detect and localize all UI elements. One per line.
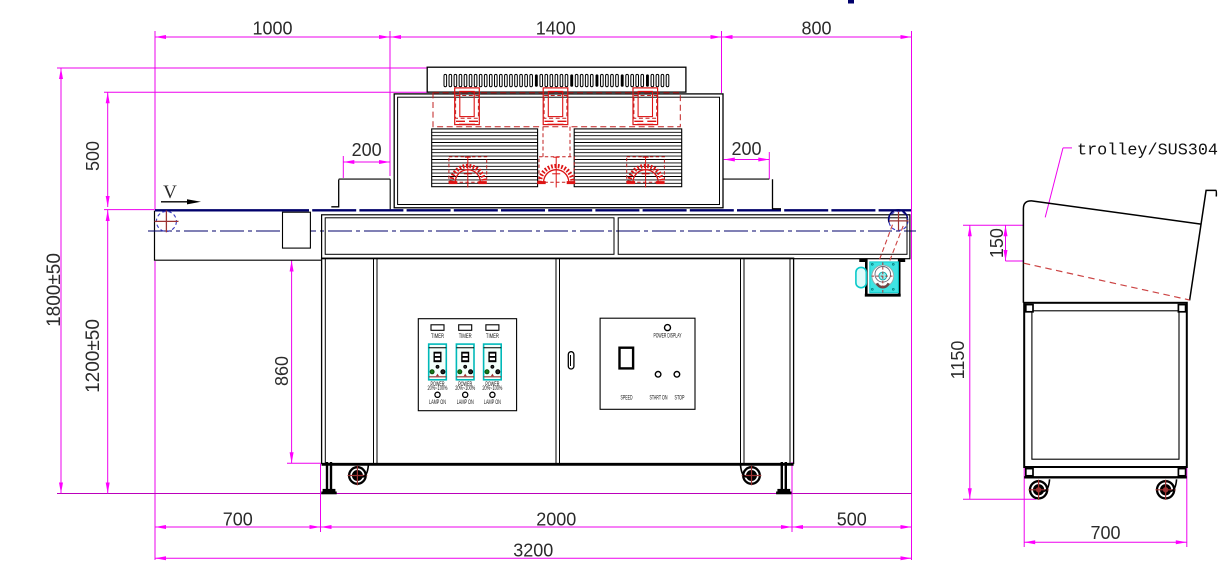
svg-text:20%~100%: 20%~100% <box>455 386 475 392</box>
svg-text:TIMER: TIMER <box>431 334 444 340</box>
svg-text:3200: 3200 <box>513 541 553 561</box>
svg-text:TIMER: TIMER <box>459 334 472 340</box>
svg-text:20%~100%: 20%~100% <box>428 386 448 392</box>
svg-text:700: 700 <box>1090 523 1120 543</box>
svg-text:200: 200 <box>352 140 382 160</box>
svg-text:500: 500 <box>837 509 867 529</box>
svg-text:LAMP ON: LAMP ON <box>457 400 474 406</box>
svg-text:TIMER: TIMER <box>486 334 499 340</box>
svg-text:LAMP ON: LAMP ON <box>484 400 501 406</box>
svg-text:POWER DISPLAY: POWER DISPLAY <box>654 333 682 339</box>
svg-text:1400: 1400 <box>536 19 576 39</box>
svg-text:V: V <box>163 182 177 203</box>
svg-text:200: 200 <box>732 139 762 159</box>
svg-text:SPEED: SPEED <box>621 396 633 402</box>
svg-text:2000: 2000 <box>536 509 576 529</box>
svg-text:860: 860 <box>272 356 292 386</box>
svg-text:START ON: START ON <box>650 396 668 402</box>
svg-text:700: 700 <box>223 509 253 529</box>
svg-text:STOP: STOP <box>675 396 685 402</box>
svg-text:1150: 1150 <box>948 341 968 380</box>
svg-text:trolley/SUS304: trolley/SUS304 <box>1077 142 1218 161</box>
svg-text:1800±50: 1800±50 <box>44 253 65 327</box>
svg-text:1000: 1000 <box>252 19 292 39</box>
svg-text:1200±50: 1200±50 <box>83 319 104 393</box>
svg-text:800: 800 <box>801 19 831 39</box>
svg-text:150: 150 <box>987 228 1007 258</box>
svg-text:LAMP ON: LAMP ON <box>429 400 446 406</box>
svg-text:500: 500 <box>83 141 103 171</box>
svg-text:20%~100%: 20%~100% <box>482 386 502 392</box>
